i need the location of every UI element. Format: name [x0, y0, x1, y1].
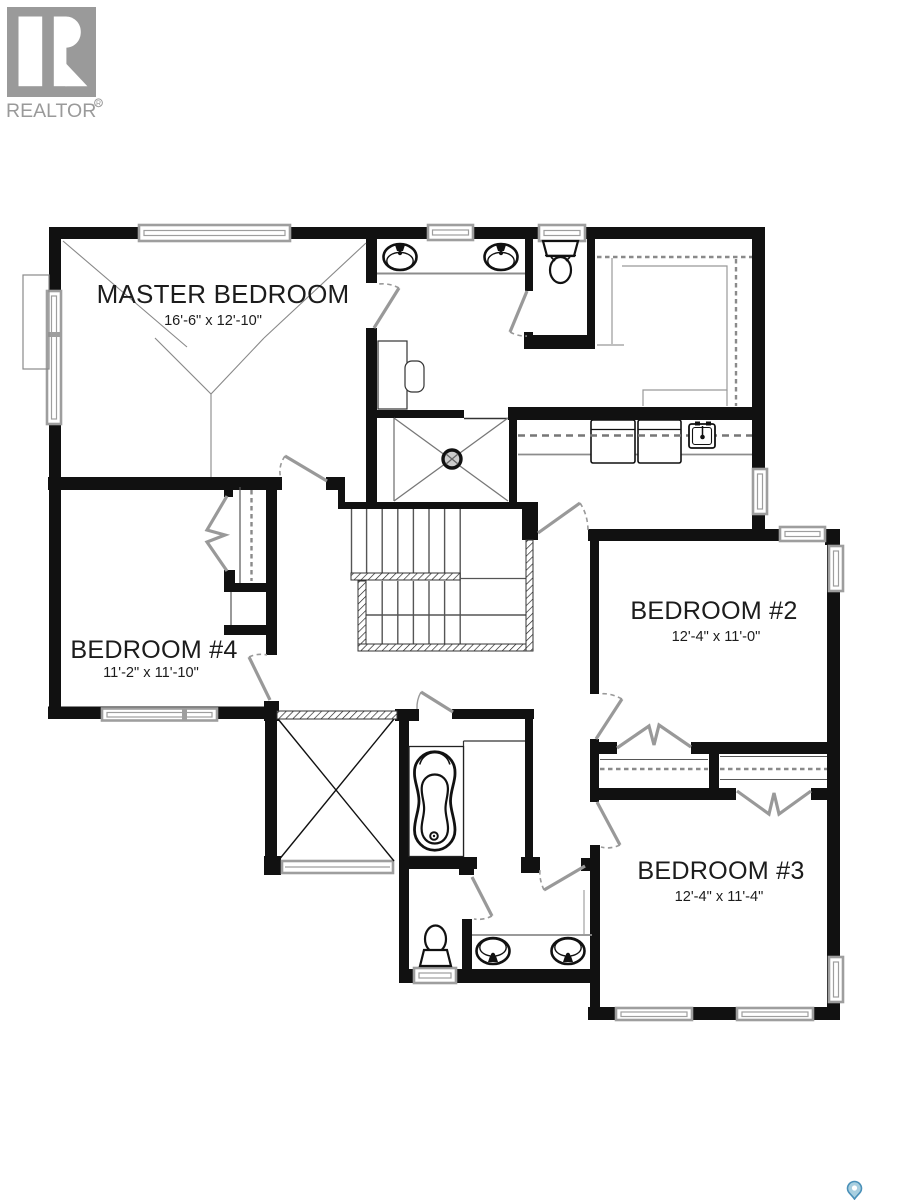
- svg-text:R: R: [96, 101, 101, 108]
- svg-text:12'-4" x 11'-0": 12'-4" x 11'-0": [672, 629, 761, 645]
- svg-text:11'-2" x 11'-10": 11'-2" x 11'-10": [103, 665, 199, 681]
- svg-text:REALTOR: REALTOR: [6, 100, 96, 122]
- svg-text:12'-4" x 11'-4": 12'-4" x 11'-4": [675, 889, 764, 905]
- svg-text:BEDROOM #4: BEDROOM #4: [70, 636, 237, 664]
- svg-text:16'-6" x 12'-10": 16'-6" x 12'-10": [164, 313, 262, 329]
- svg-text:MASTER BEDROOM: MASTER BEDROOM: [97, 279, 350, 309]
- svg-text:BEDROOM #2: BEDROOM #2: [630, 597, 797, 625]
- svg-text:BEDROOM #3: BEDROOM #3: [637, 857, 804, 885]
